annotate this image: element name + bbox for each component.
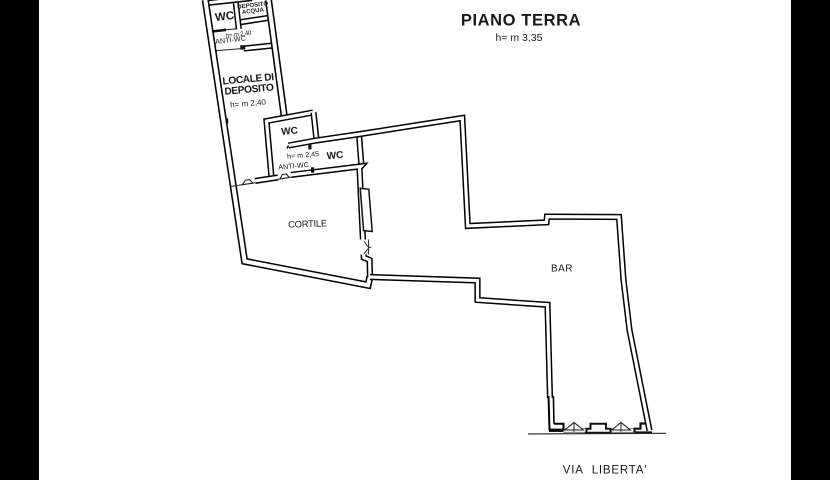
svg-text:CORTILE: CORTILE xyxy=(288,217,327,229)
svg-text:WC: WC xyxy=(281,125,299,137)
svg-text:PIANO TERRA: PIANO TERRA xyxy=(461,12,581,30)
svg-text:BAR: BAR xyxy=(551,264,573,275)
svg-text:WC: WC xyxy=(214,10,234,24)
svg-text:VIA LIBERTA': VIA LIBERTA' xyxy=(563,465,647,477)
svg-text:WC: WC xyxy=(326,150,344,162)
svg-text:h= m 3,35: h= m 3,35 xyxy=(496,32,543,44)
